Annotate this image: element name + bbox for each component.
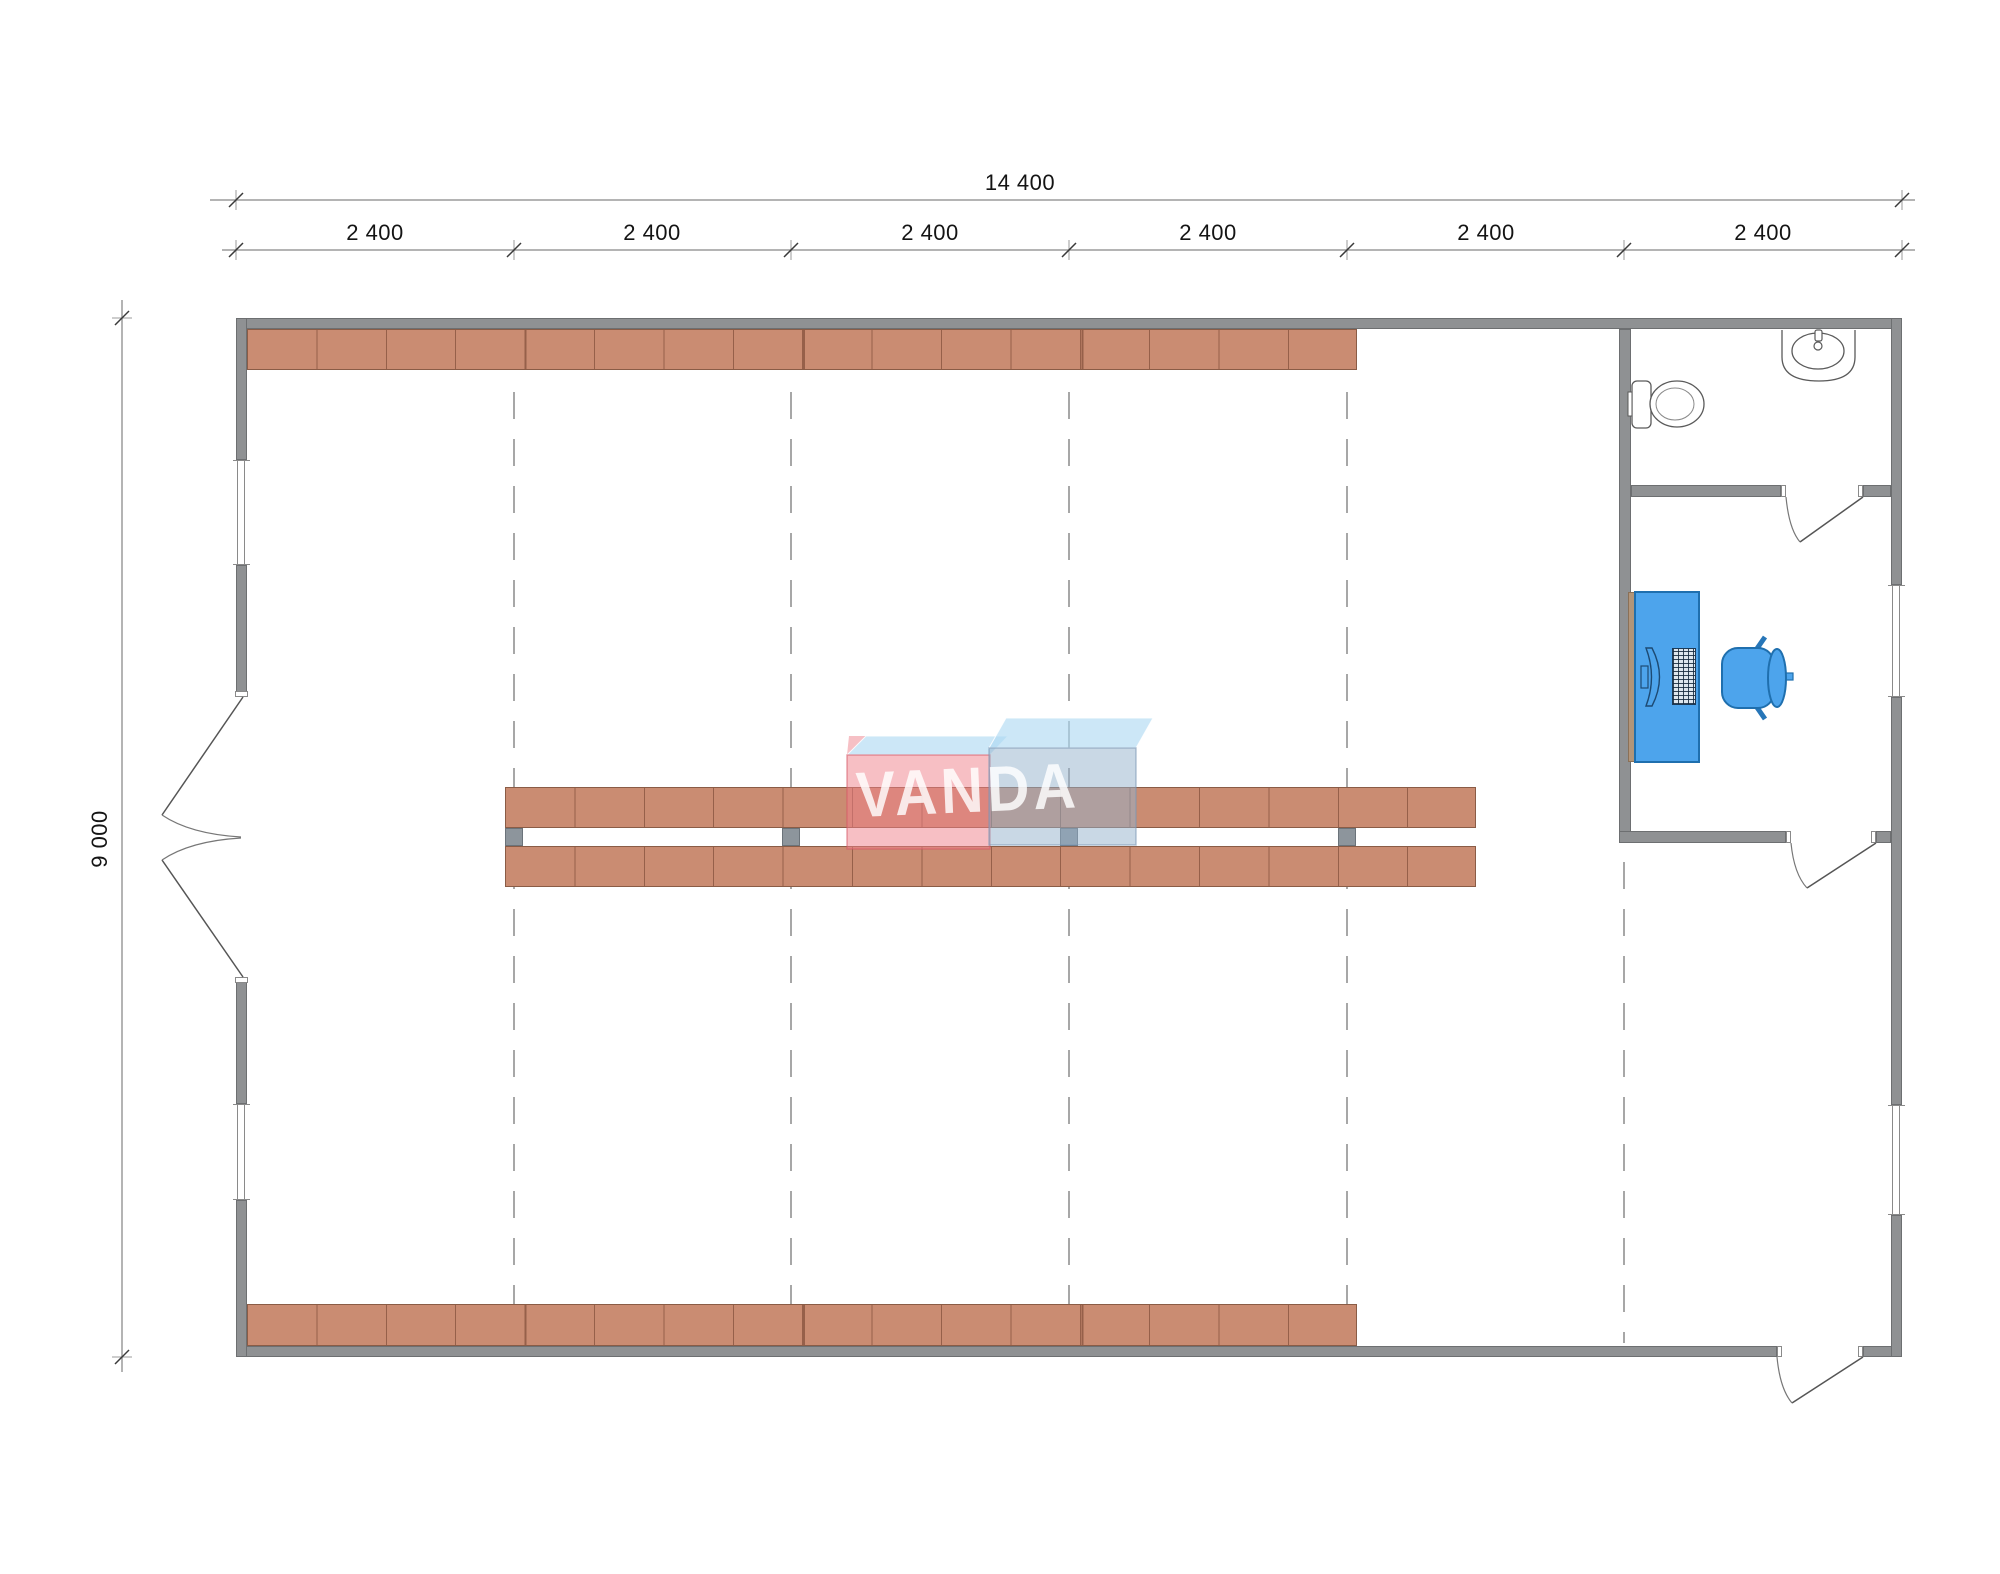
dim-label-total-width: 14 400: [950, 170, 1090, 196]
dim-label-bay-2: 2 400: [602, 220, 702, 246]
dim-label-bay-5: 2 400: [1436, 220, 1536, 246]
office-chair-icon: [1722, 637, 1793, 719]
toilet-icon: [1628, 381, 1704, 428]
watermark-text: VANDA: [854, 747, 1109, 832]
sink-icon: [1782, 330, 1855, 381]
dim-label-bay-3: 2 400: [880, 220, 980, 246]
bathroom-door: [1786, 497, 1863, 542]
dim-label-bay-6: 2 400: [1713, 220, 1813, 246]
dim-label-bay-4: 2 400: [1158, 220, 1258, 246]
double-entry-door: [162, 697, 243, 977]
office-door: [1791, 843, 1876, 888]
floor-plan-canvas: VANDA 14 400 2 400 2 400 2 400 2 400 2 4…: [0, 0, 2000, 1574]
dim-label-total-height: 9 000: [87, 794, 113, 884]
monitor-icon: [1641, 648, 1660, 706]
exterior-door-bottom-right: [1777, 1357, 1863, 1403]
dim-label-bay-1: 2 400: [325, 220, 425, 246]
